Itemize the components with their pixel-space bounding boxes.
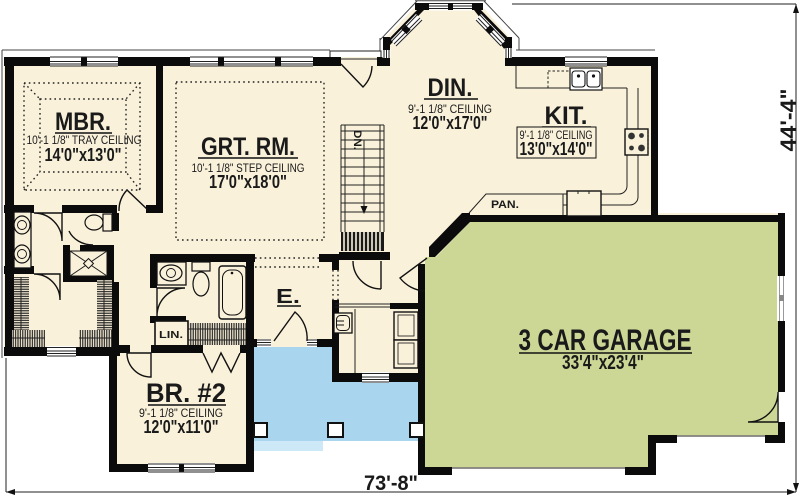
svg-text:33'4"x23'4": 33'4"x23'4" <box>562 352 644 374</box>
svg-text:BR. #2: BR. #2 <box>146 378 226 408</box>
svg-text:MBR.: MBR. <box>55 108 111 136</box>
svg-text:LIN.: LIN. <box>159 329 183 341</box>
svg-text:E.: E. <box>276 286 300 308</box>
svg-text:PAN.: PAN. <box>491 199 519 211</box>
svg-text:13'0"x14'0": 13'0"x14'0" <box>520 139 593 159</box>
svg-text:12'0"x11'0": 12'0"x11'0" <box>144 417 219 437</box>
svg-text:44'-4": 44'-4" <box>776 89 800 152</box>
svg-text:73'-8": 73'-8" <box>364 472 418 495</box>
svg-text:DIN.: DIN. <box>428 74 473 102</box>
svg-text:KIT.: KIT. <box>545 102 588 130</box>
svg-text:GRT. RM.: GRT. RM. <box>201 133 295 161</box>
svg-text:12'0"x17'0": 12'0"x17'0" <box>413 113 488 133</box>
svg-text:17'0"x18'0": 17'0"x18'0" <box>209 172 287 192</box>
svg-text:14'0"x13'0": 14'0"x13'0" <box>45 145 122 165</box>
svg-text:DN.: DN. <box>351 130 363 150</box>
